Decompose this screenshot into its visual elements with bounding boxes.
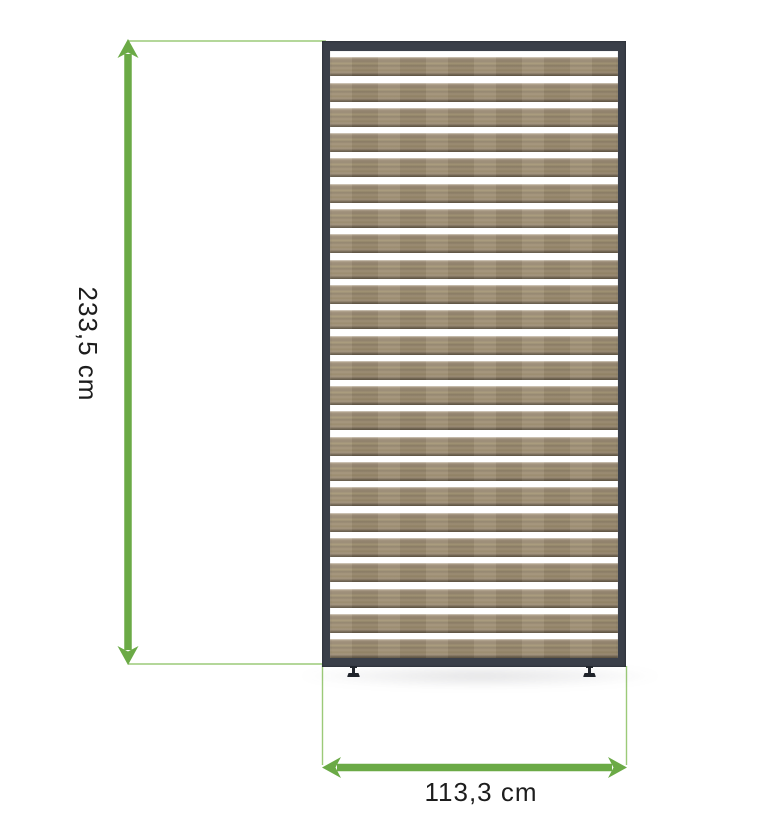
wood-slat <box>330 411 618 430</box>
wood-slat <box>330 563 618 582</box>
privacy-screen-panel <box>322 41 626 667</box>
wood-slat <box>330 589 618 608</box>
foot-stem <box>588 668 591 673</box>
product-dimension-diagram: 233,5 cm 113,3 cm <box>0 0 759 827</box>
foot-stem <box>352 668 355 673</box>
wood-slat <box>330 260 618 279</box>
height-dimension-label: 233,5 cm <box>75 287 101 402</box>
wood-slat <box>330 437 618 456</box>
wood-slat <box>330 614 618 633</box>
wood-slat <box>330 184 618 203</box>
wood-slat <box>330 209 618 228</box>
wood-slat <box>330 285 618 304</box>
wood-slat <box>330 462 618 481</box>
slat-area <box>330 51 618 658</box>
wood-slat <box>330 336 618 355</box>
wood-slat <box>330 83 618 102</box>
wood-slat <box>330 487 618 506</box>
panel-foot-right <box>583 666 596 679</box>
wood-slat <box>330 234 618 253</box>
wood-slat <box>330 310 618 329</box>
foot-base <box>583 673 596 677</box>
wood-slat <box>330 158 618 177</box>
foot-base <box>347 673 360 677</box>
wood-slat <box>330 513 618 532</box>
wood-slat <box>330 361 618 380</box>
wood-slat <box>330 386 618 405</box>
panel-foot-left <box>347 666 360 679</box>
width-dimension-label: 113,3 cm <box>424 779 537 805</box>
wood-slat <box>330 57 618 76</box>
wood-slat <box>330 133 618 152</box>
wood-slat <box>330 538 618 557</box>
wood-slat <box>330 639 618 658</box>
wood-slat <box>330 108 618 127</box>
